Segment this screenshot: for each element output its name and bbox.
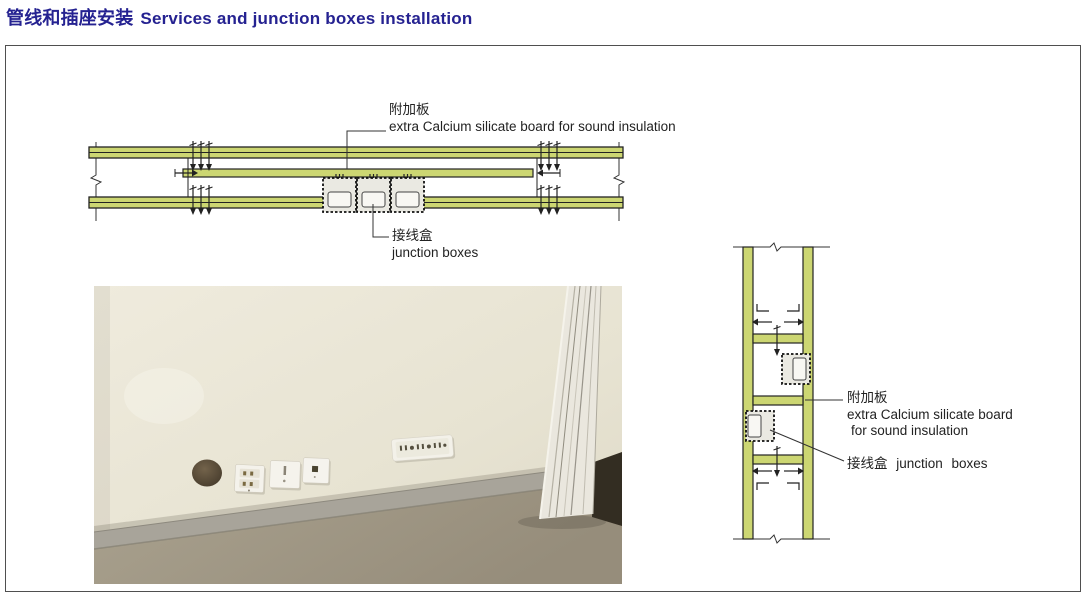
label-junction-boxes: 接线盒 junction boxes	[392, 227, 478, 261]
dark-gap	[592, 452, 622, 526]
label-junction-boxes-en: junction boxes	[392, 244, 478, 261]
label-extra-board-side-en2: for sound insulation	[847, 423, 1013, 440]
board-shadow	[518, 515, 606, 529]
switch-plate	[269, 460, 301, 490]
label-junction-boxes-side: 接线盒 junction boxes	[847, 455, 988, 472]
label-extra-board-side-zh: 附加板	[847, 390, 1013, 407]
label-junction-boxes-zh: 接线盒	[392, 227, 478, 244]
label-extra-board: 附加板 extra Calcium silicate board for sou…	[389, 101, 676, 135]
wall-hole	[192, 460, 222, 487]
socket-plate-1	[234, 464, 266, 494]
site-photo	[94, 286, 622, 584]
label-extra-board-en: extra Calcium silicate board for sound i…	[389, 118, 676, 135]
page-title-zh: 管线和插座安装	[6, 8, 133, 28]
page-title-en: Services and junction boxes installation	[140, 9, 472, 28]
label-extra-board-side-en1: extra Calcium silicate board	[847, 407, 1013, 424]
label-extra-board-zh: 附加板	[389, 101, 676, 118]
page: 管线和插座安装Services and junction boxes insta…	[0, 0, 1086, 599]
label-extra-board-side: 附加板 extra Calcium silicate board for sou…	[847, 390, 1013, 440]
multi-socket-plate	[391, 434, 455, 463]
socket-plate-2	[302, 458, 330, 486]
page-title: 管线和插座安装Services and junction boxes insta…	[6, 4, 472, 30]
